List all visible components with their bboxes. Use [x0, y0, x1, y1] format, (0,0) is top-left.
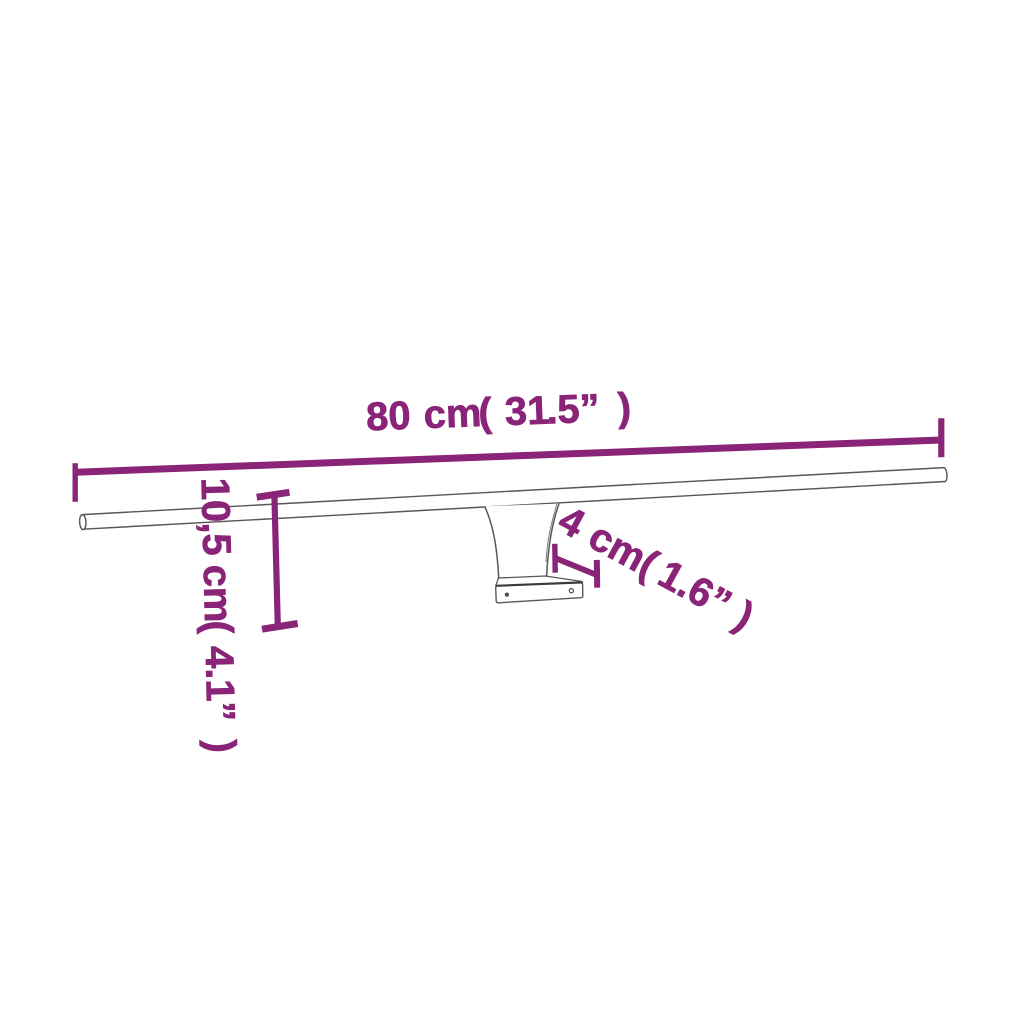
svg-text:10,5 cm( 4.1” ): 10,5 cm( 4.1” )	[193, 477, 244, 753]
